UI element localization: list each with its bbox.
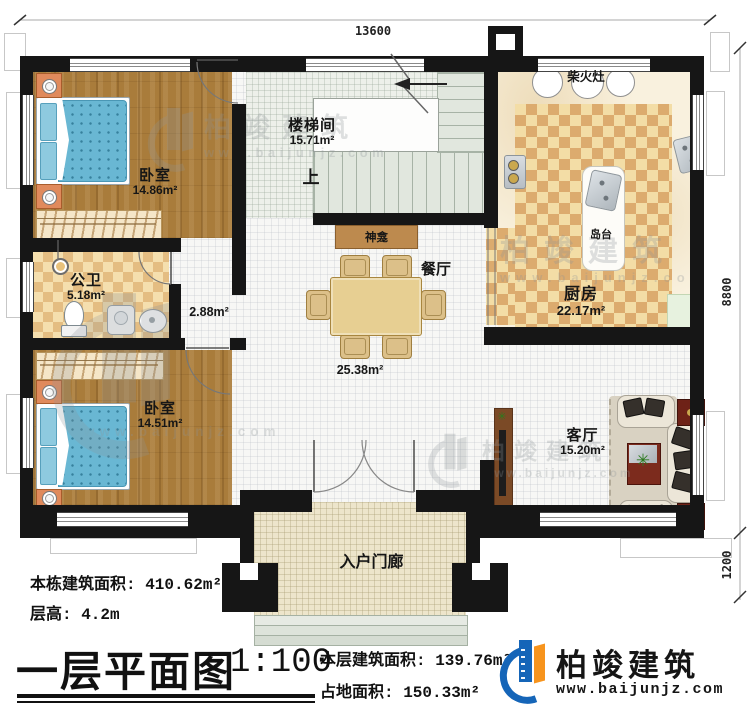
window-sill: [706, 91, 725, 176]
kitchen-label: 厨房 22.17m²: [528, 286, 634, 319]
wall-bedroom2-top: [20, 338, 185, 350]
footprint-text: 占地面积: 150.33m²: [320, 678, 480, 702]
dimension-height-porch: 1200: [720, 545, 734, 585]
window-sill: [706, 411, 725, 501]
window: [692, 95, 704, 170]
porch-pillar-left-notch: [240, 563, 258, 580]
room-area: 14.86m²: [105, 184, 205, 198]
bathroom-label: 公卫 5.18m²: [40, 272, 132, 303]
wall-kitchen-bottom: [484, 327, 704, 345]
wall-entry-left: [254, 490, 312, 512]
floor-height-text: 层高: 4.2m: [30, 600, 120, 624]
dimension-tick: [704, 15, 716, 25]
kitchen-doorway-rug: [486, 228, 515, 325]
dimension-tick: [734, 591, 746, 603]
nightstand: [36, 184, 62, 209]
window: [70, 58, 190, 72]
window: [692, 415, 704, 495]
bed-pillow: [40, 142, 57, 180]
wall-porch-right: [466, 490, 480, 563]
floor-area-text: 本层建筑面积: 139.76m²: [320, 646, 512, 670]
wall-bedroom2-top-stub: [230, 338, 246, 350]
wood-stove-label: 柴火灶: [544, 71, 628, 85]
room-area: 14.51m²: [110, 417, 210, 431]
dimension-tick: [734, 527, 746, 539]
living-label: 客厅 15.20m²: [535, 427, 630, 458]
stair-treads-upper: [437, 72, 486, 153]
window: [22, 95, 34, 185]
stairwell-label: 楼梯间 15.71m²: [260, 117, 364, 148]
wall-stair-bottom: [313, 213, 484, 225]
sink-drain: [149, 317, 155, 323]
wall-living-divider: [480, 460, 494, 512]
dimension-width: 13600: [347, 24, 399, 38]
washing-machine-drum: [114, 311, 128, 325]
tv: [499, 430, 506, 496]
room-name: 卧室: [110, 400, 210, 417]
shrine-label: 神龛: [365, 229, 388, 245]
plant: ✳: [633, 451, 653, 471]
room-name: 厨房: [528, 286, 634, 304]
window-sill: [620, 538, 732, 558]
bed-pillow: [40, 103, 57, 141]
window: [57, 512, 188, 527]
window: [306, 58, 424, 72]
sofa-pillow: [644, 397, 666, 417]
title-underline: [17, 701, 315, 703]
dining-chair: [421, 290, 446, 320]
floor-plan-sheet: 神龛 ✳ ✳: [0, 0, 750, 716]
title-underline: [17, 694, 315, 698]
window-sill: [710, 32, 730, 72]
nightstand: [36, 73, 62, 98]
room-name: 楼梯间: [260, 117, 364, 134]
shrine: 神龛: [335, 225, 418, 249]
stair-treads-lower: [313, 150, 486, 218]
island-label: 岛台: [577, 229, 625, 241]
stove-burner: [508, 173, 519, 184]
window: [540, 512, 676, 527]
bedroom2-label: 卧室 14.51m²: [110, 400, 210, 431]
dining-label: 餐厅: [398, 262, 474, 279]
dining-area-label: 25.38m²: [320, 364, 400, 378]
room-name: 公卫: [40, 272, 132, 289]
chimney: [488, 26, 523, 58]
porch-pillar-right-notch: [472, 563, 490, 580]
window: [22, 398, 34, 468]
porch-label: 入户门廊: [299, 554, 444, 572]
room-name: 卧室: [105, 167, 205, 184]
dining-chair: [306, 290, 331, 320]
bedroom1-label: 卧室 14.86m²: [105, 167, 205, 198]
dining-chair: [340, 334, 370, 359]
total-area-text: 本栋建筑面积: 410.62m²: [30, 570, 222, 594]
stair-up-label: 上: [294, 169, 328, 188]
wall-porch-left: [240, 490, 254, 563]
bed-pillow: [40, 408, 57, 446]
wardrobe: [36, 210, 162, 239]
dining-table: [330, 277, 422, 336]
brand-logo: [502, 638, 548, 696]
wardrobe: [36, 352, 164, 380]
room-name: 客厅: [535, 427, 630, 444]
dimension-tick: [14, 15, 26, 25]
dimension-tick: [734, 42, 746, 54]
toilet-tank: [61, 325, 87, 337]
hallway-area-label: 2.88m²: [172, 306, 246, 320]
sheet-title: 一层平面图: [16, 638, 236, 699]
sheet-scale: 1:100: [230, 644, 332, 682]
wall-bedroom1-bottom: [20, 238, 181, 252]
plant: ✳: [495, 410, 509, 424]
brand-logo-icon: [502, 638, 548, 696]
room-area: 22.17m²: [528, 304, 634, 319]
stove-burner: [508, 160, 519, 171]
dining-chair: [382, 334, 412, 359]
bed-pillow: [40, 447, 57, 485]
dimension-height-main: 8800: [720, 272, 734, 312]
window-sill: [50, 538, 197, 554]
room-area: 15.71m²: [260, 134, 364, 148]
brand-website: www.baijunjz.com: [556, 681, 724, 698]
nightstand: [36, 380, 62, 404]
window: [22, 262, 34, 312]
room-area: 15.20m²: [535, 444, 630, 458]
wall-bedroom1-right: [232, 104, 246, 295]
brand-name: 柏竣建筑: [556, 640, 700, 685]
room-area: 5.18m²: [40, 289, 132, 303]
wall-kitchen-left: [484, 56, 498, 228]
